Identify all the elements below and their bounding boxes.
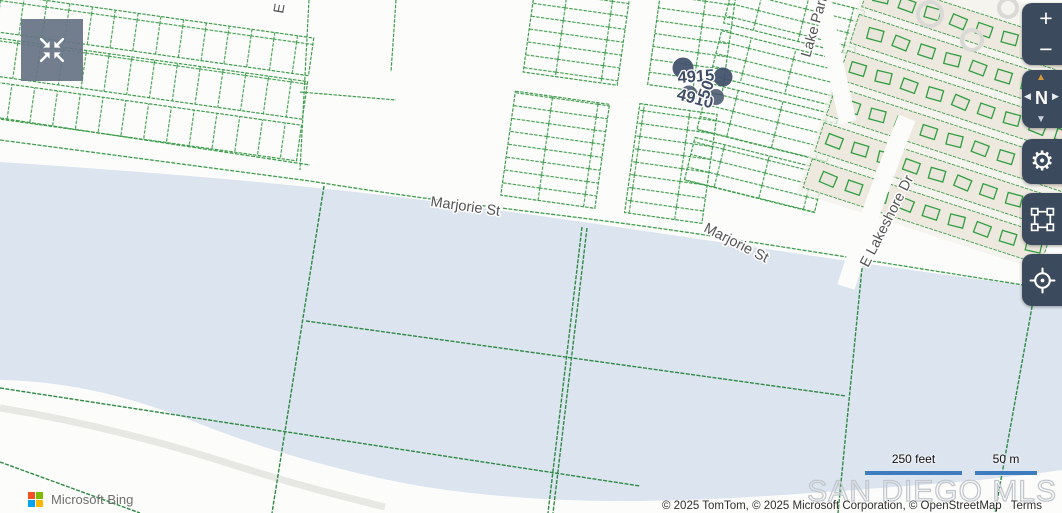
map-window: Marjorie St Marjorie St Lake Park E Lake… (0, 0, 1062, 513)
scale-feet-bar (865, 471, 962, 475)
terms-link[interactable]: Terms (1011, 500, 1042, 512)
compass-north-label[interactable]: N (1035, 88, 1048, 109)
scale-bar: 250 feet 50 m (865, 452, 1037, 475)
bing-provider-label: Microsoft Bing (51, 492, 133, 507)
compass-left-arrow-icon[interactable]: ◀ (1024, 91, 1031, 102)
locate-me-button[interactable] (1022, 254, 1062, 306)
compass-up-arrow-icon[interactable]: ▲ (1036, 72, 1046, 83)
rectangle-select-button[interactable] (1022, 193, 1062, 245)
collapse-map-button[interactable] (21, 19, 83, 81)
scale-meters-label: 50 m (993, 452, 1020, 466)
map-canvas[interactable]: Marjorie St Marjorie St Lake Park E Lake… (0, 0, 1062, 513)
scale-meters-bar (975, 471, 1037, 475)
microsoft-logo-icon (28, 492, 43, 507)
zoom-out-button[interactable]: − (1022, 34, 1062, 65)
collapse-icon (35, 33, 69, 67)
compass-down-arrow-icon[interactable]: ▼ (1036, 114, 1046, 125)
compass-control[interactable]: ▲ ◀ N ▶ ▼ (1022, 70, 1062, 128)
zoom-in-button[interactable]: + (1022, 3, 1062, 34)
microsoft-bing-logo[interactable]: Microsoft Bing (28, 492, 133, 507)
map-attribution: © 2025 TomTom, © 2025 Microsoft Corporat… (662, 500, 1042, 512)
map-settings-button[interactable]: ⚙ (1022, 139, 1062, 184)
rectangle-select-icon (1029, 206, 1056, 233)
copyright-text: © 2025 TomTom, © 2025 Microsoft Corporat… (662, 500, 1002, 512)
locate-icon (1029, 267, 1056, 294)
compass-right-arrow-icon[interactable]: ▶ (1052, 91, 1059, 102)
zoom-control: + − (1022, 3, 1062, 65)
scale-feet-label: 250 feet (892, 452, 935, 466)
gear-icon: ⚙ (1030, 146, 1054, 177)
